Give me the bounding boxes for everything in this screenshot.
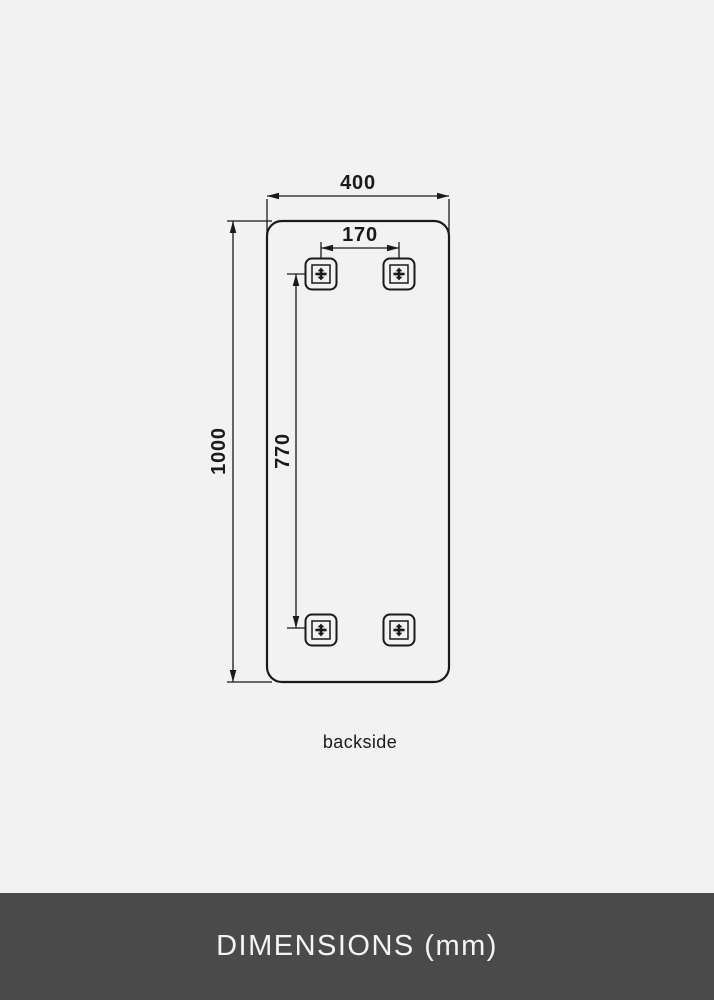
arrowhead [321, 245, 333, 252]
height-value: 1000 [208, 427, 230, 475]
arrowhead [230, 670, 237, 682]
width-value: 400 [340, 172, 376, 194]
arrowhead [293, 616, 300, 628]
mounting-bracket-icon [306, 259, 337, 290]
mounting-bracket-icon [384, 259, 415, 290]
arrowhead [437, 193, 449, 200]
arrowhead [387, 245, 399, 252]
bracket-spacing-horizontal-value: 170 [342, 224, 378, 246]
bracket-spacing-vertical-value: 770 [272, 433, 294, 469]
mounting-bracket-icon [384, 615, 415, 646]
dimension-height: 1000 [208, 221, 272, 682]
mounting-bracket-icon [306, 615, 337, 646]
arrowhead [293, 274, 300, 286]
dimension-bracket-spacing-vertical: 770 [272, 274, 305, 628]
arrowhead [267, 193, 279, 200]
footer-title: DIMENSIONS (mm) [216, 930, 498, 963]
mirror-outline [267, 221, 449, 682]
footer-bar: DIMENSIONS (mm) [0, 893, 714, 1000]
backside-label: backside [323, 732, 397, 752]
dimension-bracket-spacing-horizontal: 170 [321, 224, 399, 258]
mirror-dimension-diagram: 400 1000 170 770 [0, 0, 714, 893]
arrowhead [230, 221, 237, 233]
product-dimension-page: 400 1000 170 770 [0, 0, 714, 1000]
